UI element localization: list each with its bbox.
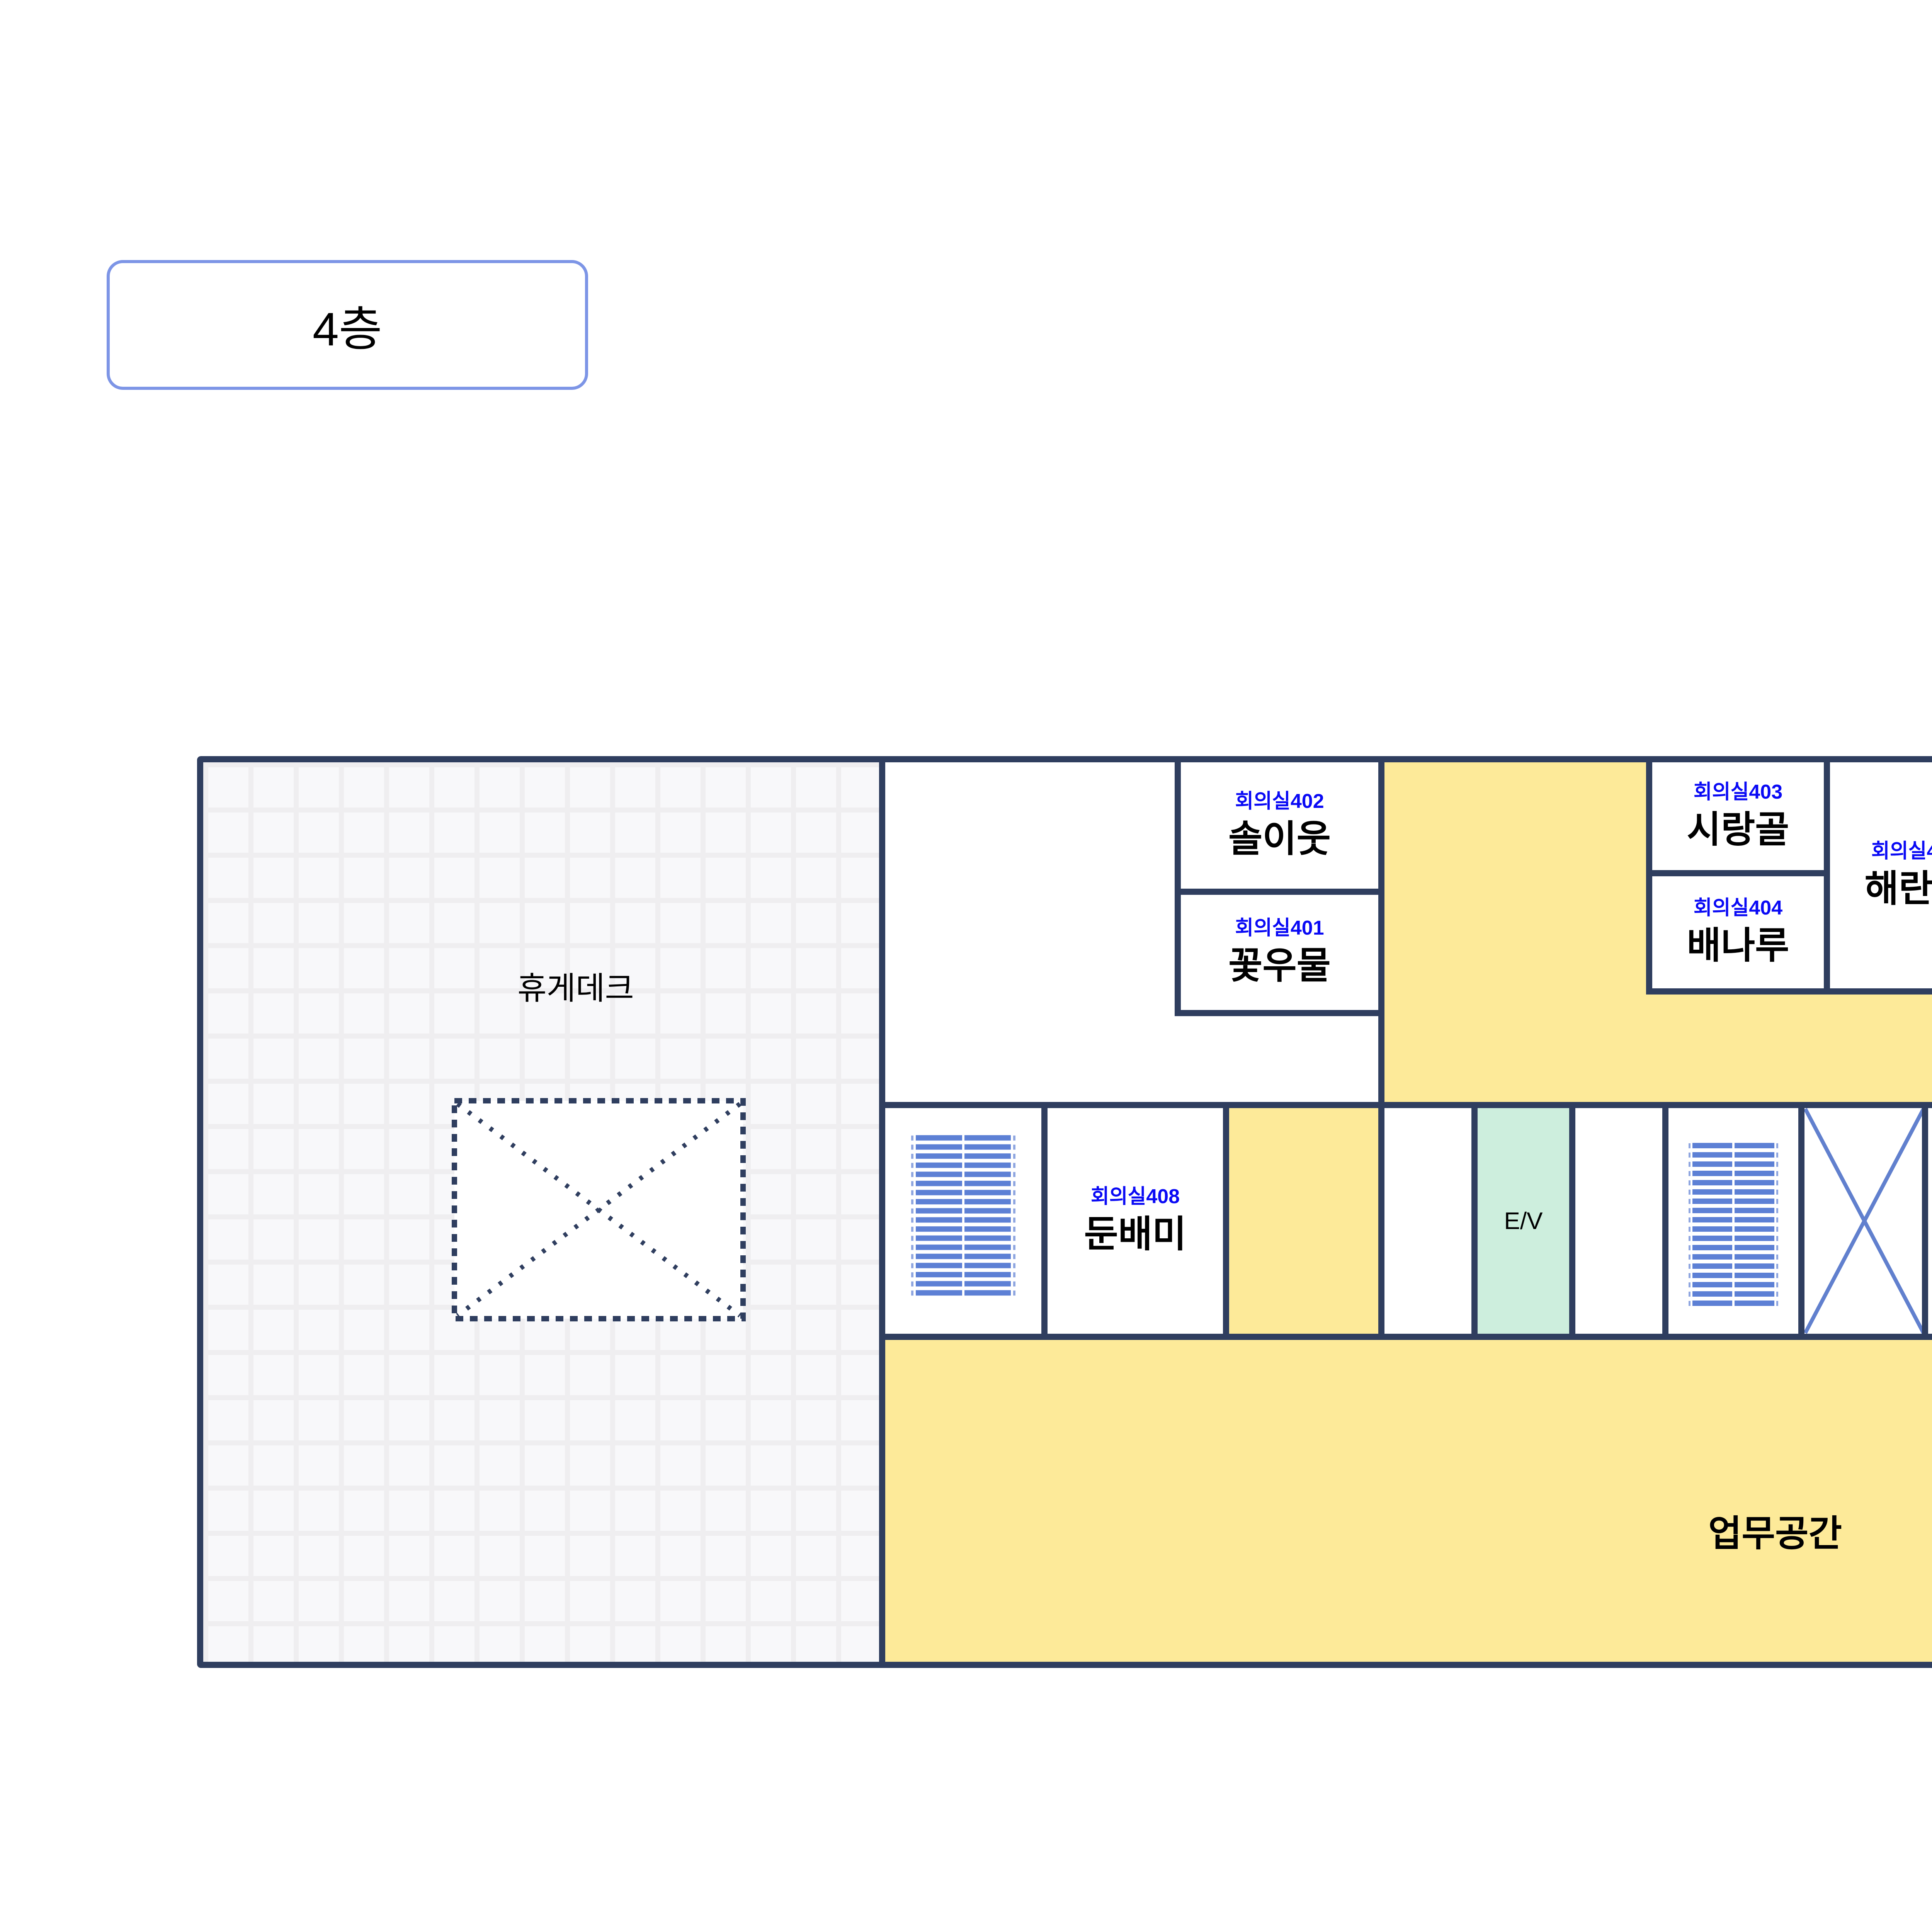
floor-plan-page: 4층 회의실402 솔이웃 회의실401 꽃우물 회의실403 시랑골 회의실4… (0, 0, 1932, 1916)
floor-title: 4층 (313, 291, 382, 359)
floor-title-box: 4층 (107, 260, 588, 390)
plan-outer-wall (197, 756, 1932, 1668)
